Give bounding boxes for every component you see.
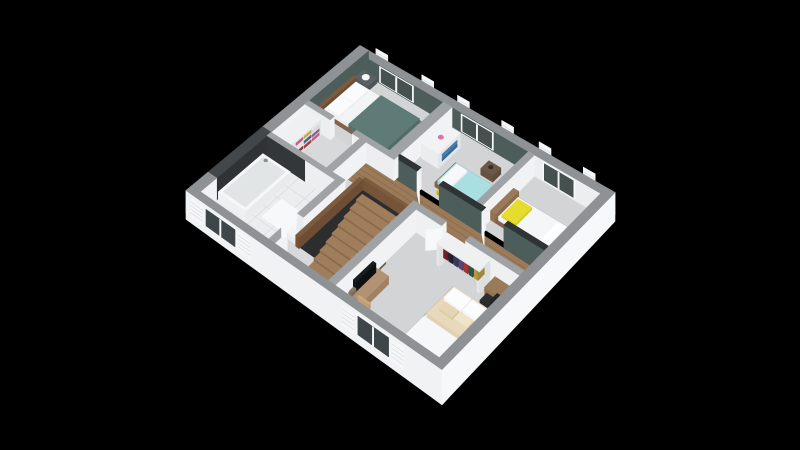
- floorplan-3d-render: [0, 0, 800, 450]
- floorplan-canvas: [0, 0, 800, 450]
- bedroom-window-mullion: [372, 327, 373, 347]
- kid1-pink-lamp: [438, 135, 444, 140]
- kid1-black-lamp: [488, 165, 493, 169]
- kid1-window-mullion: [476, 124, 477, 140]
- master-window-mullion: [396, 77, 397, 92]
- bathtub-faucet: [264, 159, 268, 163]
- kid2-window-mullion: [558, 172, 559, 189]
- bath-window-mullion: [220, 219, 221, 237]
- master-lamp-left: [362, 74, 370, 80]
